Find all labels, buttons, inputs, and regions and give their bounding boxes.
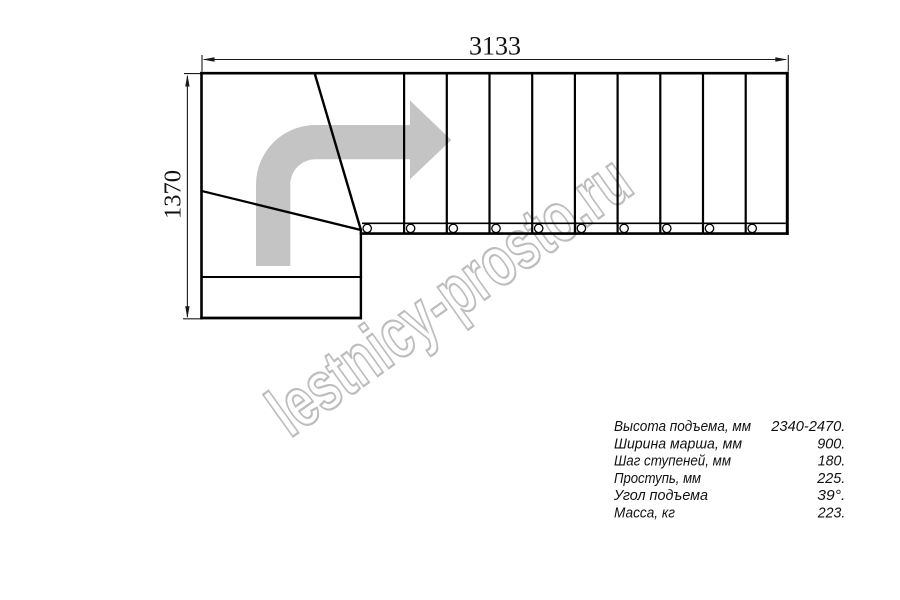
svg-text:lestnicy-prosto.ru: lestnicy-prosto.ru xyxy=(253,140,646,452)
svg-text:Шаг ступеней, мм: Шаг ступеней, мм xyxy=(614,453,731,470)
svg-text:Угол подъема: Угол подъема xyxy=(613,487,708,504)
svg-text:39°.: 39°. xyxy=(817,487,845,504)
svg-text:Масса, кг: Масса, кг xyxy=(614,504,676,521)
svg-text:Проступь, мм: Проступь, мм xyxy=(614,470,701,487)
svg-text:225.: 225. xyxy=(816,470,845,487)
svg-text:3133: 3133 xyxy=(469,31,521,60)
svg-text:2340-2470.: 2340-2470. xyxy=(770,418,845,435)
svg-text:1370: 1370 xyxy=(159,170,186,219)
svg-text:Ширина марша, мм: Ширина марша, мм xyxy=(614,435,742,452)
svg-text:Высота подъема, мм: Высота подъема, мм xyxy=(614,418,751,435)
svg-text:180.: 180. xyxy=(818,453,846,470)
svg-text:223.: 223. xyxy=(817,504,845,521)
svg-text:900.: 900. xyxy=(817,435,845,452)
